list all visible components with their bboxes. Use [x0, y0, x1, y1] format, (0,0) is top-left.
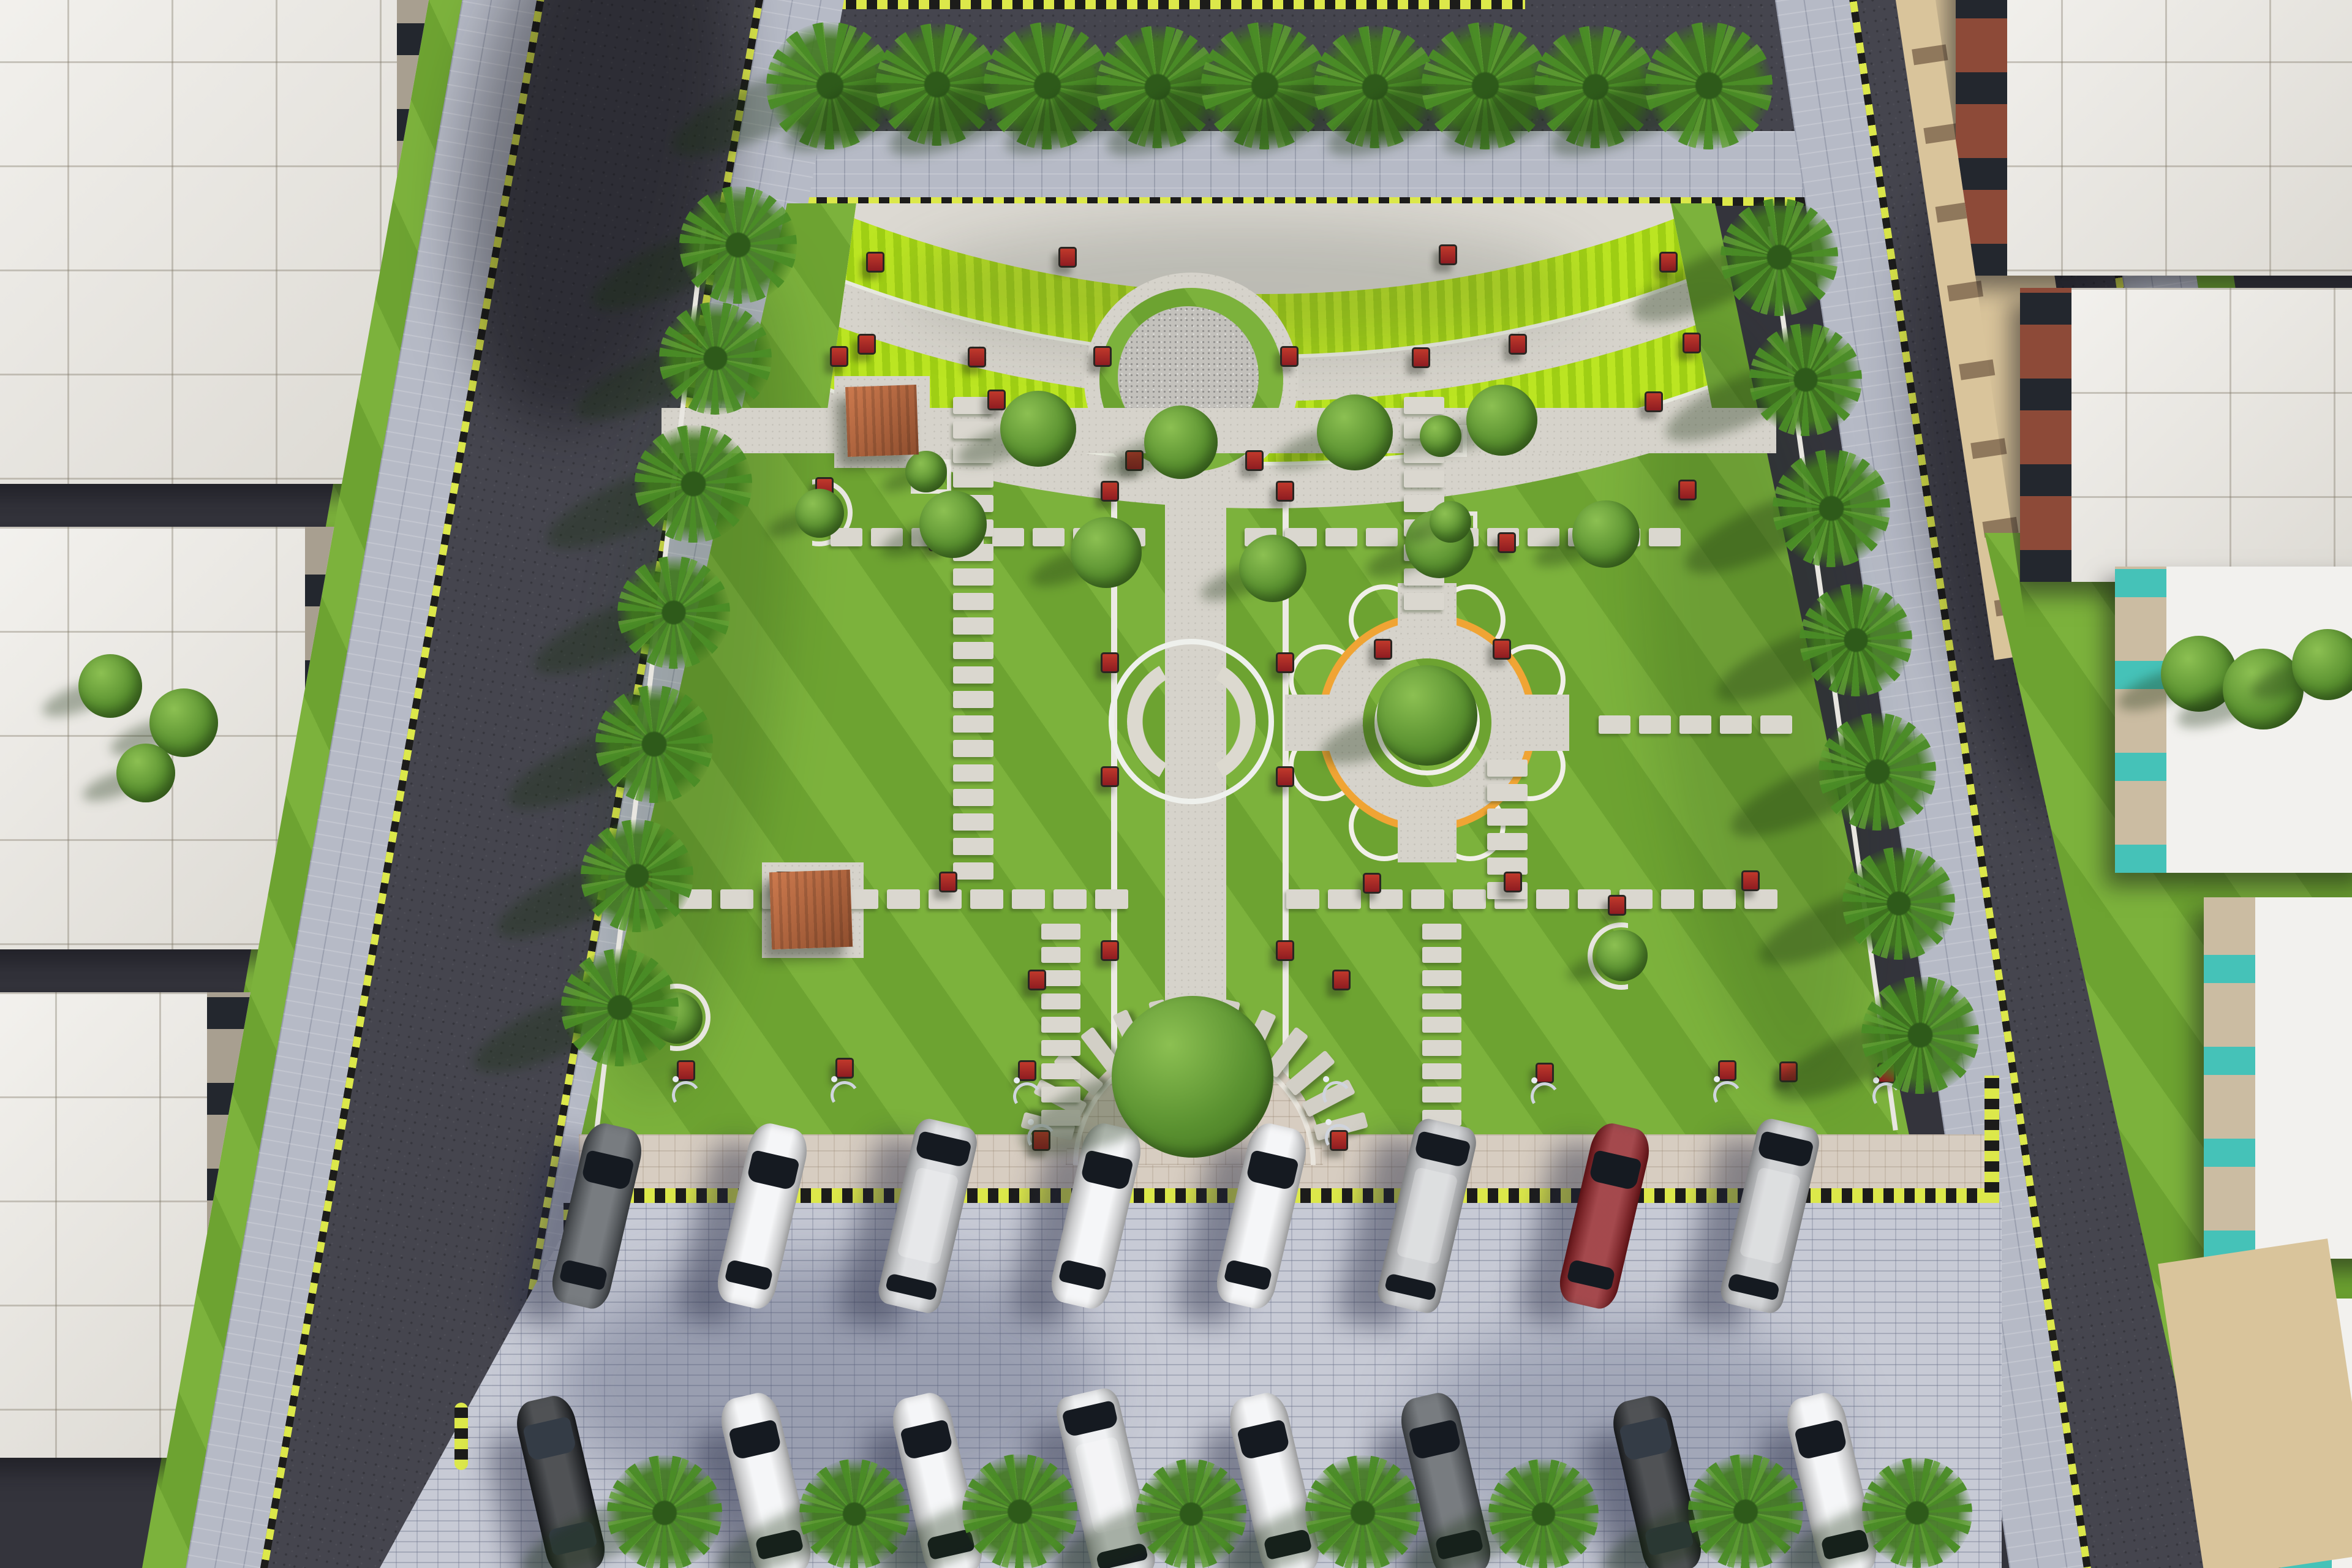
- round-tree: [1466, 385, 1537, 456]
- stepping-stone: [1422, 1040, 1461, 1056]
- tree-canopy: [1317, 394, 1393, 470]
- red-bench: [1101, 481, 1119, 502]
- red-bench: [1363, 873, 1381, 894]
- stepping-stone: [1487, 809, 1528, 826]
- parking-palm-bush-canopy: [1305, 1455, 1420, 1568]
- palm-tree: [1819, 713, 1936, 831]
- stepping-stone: [1041, 1063, 1080, 1079]
- round-tree: [1420, 415, 1461, 457]
- stepping-stone: [1411, 889, 1444, 909]
- round-tree: [78, 654, 142, 718]
- red-bench: [1245, 450, 1264, 471]
- palm-tree: [1645, 22, 1773, 149]
- stepping-stone: [1422, 947, 1461, 963]
- stepping-stone: [1453, 889, 1486, 909]
- stepping-stone: [887, 889, 920, 909]
- red-bench: [1678, 480, 1697, 500]
- palm-tree-canopy: [635, 425, 752, 543]
- parked-car-sedan: [548, 1120, 646, 1312]
- red-bench: [830, 346, 848, 367]
- stepping-stone: [1536, 889, 1569, 909]
- red-bench: [1493, 639, 1511, 660]
- red-bench: [968, 347, 986, 367]
- parking-palm-bush: [607, 1455, 722, 1568]
- stepping-stone: [1041, 970, 1080, 986]
- lamp-post: [669, 1079, 703, 1112]
- red-bench: [939, 872, 957, 892]
- red-bench: [1101, 652, 1119, 673]
- red-bench: [1018, 1060, 1036, 1081]
- parked-car-van: [1717, 1116, 1822, 1315]
- lamp-post: [1711, 1079, 1744, 1112]
- palm-tree: [679, 186, 797, 304]
- parking-palm-bush: [962, 1454, 1077, 1568]
- stepping-stone: [720, 889, 753, 909]
- stepping-stone: [953, 862, 993, 880]
- palm-tree-canopy: [1800, 584, 1912, 696]
- stepping-stone: [1041, 993, 1080, 1009]
- stepping-stone: [1404, 593, 1444, 610]
- stepping-stone: [1095, 889, 1128, 909]
- round-tree: [1596, 930, 1648, 981]
- stepping-stone: [1760, 715, 1792, 734]
- red-bench: [1683, 333, 1701, 353]
- stepping-stone: [1041, 924, 1080, 940]
- stepping-stone: [1404, 470, 1444, 488]
- stepping-stone: [953, 642, 993, 659]
- palm-tree-canopy: [1861, 976, 1979, 1094]
- tree-canopy: [795, 489, 844, 538]
- tree-canopy: [1000, 391, 1076, 467]
- palm-tree-canopy: [561, 949, 679, 1066]
- red-bench: [1093, 346, 1112, 367]
- tree-canopy: [1112, 996, 1273, 1158]
- red-bench: [1718, 1060, 1736, 1081]
- palm-tree: [617, 556, 730, 669]
- gazebo-1-roof: [845, 385, 919, 457]
- red-bench: [866, 252, 884, 273]
- stepping-stone: [953, 740, 993, 757]
- palm-tree: [659, 302, 772, 415]
- palm-tree-canopy: [679, 186, 797, 304]
- round-tree: [1144, 405, 1218, 479]
- stepping-stone: [1703, 889, 1736, 909]
- stepping-stone: [992, 528, 1024, 546]
- palm-tree-canopy: [659, 302, 772, 415]
- tree-canopy: [1144, 405, 1218, 479]
- stepping-stone: [1487, 784, 1528, 801]
- stepping-stone: [1422, 993, 1461, 1009]
- stepping-stone: [953, 691, 993, 708]
- palm-tree-canopy: [1773, 450, 1890, 567]
- palm-tree-canopy: [581, 820, 693, 932]
- stepping-stone: [1422, 1017, 1461, 1033]
- stepping-stone: [953, 789, 993, 806]
- gazebo-2-roof: [769, 870, 853, 950]
- stepping-stone: [1422, 1087, 1461, 1102]
- stepping-stone: [953, 764, 993, 782]
- stepping-stone: [1366, 528, 1398, 546]
- palm-tree-canopy: [617, 556, 730, 669]
- round-tree: [795, 489, 844, 538]
- red-bench: [1412, 347, 1430, 368]
- red-bench: [1439, 244, 1457, 265]
- tree-canopy: [1420, 415, 1461, 457]
- stepping-stone: [1639, 715, 1671, 734]
- palm-tree-canopy: [1819, 713, 1936, 831]
- red-bench: [1276, 652, 1294, 673]
- red-bench: [858, 334, 876, 355]
- tree-canopy: [1239, 535, 1306, 602]
- red-bench: [835, 1058, 854, 1079]
- red-bench: [1276, 766, 1294, 787]
- red-bench: [1280, 346, 1298, 367]
- red-bench: [1058, 247, 1077, 268]
- stepping-stone: [953, 617, 993, 635]
- lamp-post: [1528, 1080, 1562, 1114]
- parked-car-sedan: [1555, 1120, 1654, 1312]
- round-tree: [1377, 665, 1477, 766]
- palm-tree: [1842, 847, 1955, 960]
- parking-palm-bush-canopy: [607, 1455, 722, 1568]
- red-bench: [1536, 1063, 1554, 1084]
- round-tree: [1000, 391, 1076, 467]
- red-bench: [1028, 970, 1046, 990]
- palm-tree: [1749, 323, 1862, 436]
- palm-tree: [595, 685, 713, 803]
- red-bench: [1332, 970, 1351, 990]
- round-tree: [919, 491, 987, 558]
- round-tree: [905, 451, 947, 492]
- tree-canopy: [905, 451, 947, 492]
- stepping-stone: [1487, 759, 1528, 777]
- stepping-stone: [1328, 889, 1361, 909]
- stepping-stone: [953, 715, 993, 733]
- round-tree: [2292, 629, 2352, 700]
- tree-canopy: [1466, 385, 1537, 456]
- parked-car-van: [875, 1116, 980, 1315]
- stepping-stone: [953, 593, 993, 610]
- palm-tree: [581, 820, 693, 932]
- tree-canopy: [919, 491, 987, 558]
- round-tree: [1071, 517, 1142, 588]
- palm-tree-canopy: [1842, 847, 1955, 960]
- parking-palm-bush-canopy: [1488, 1459, 1599, 1568]
- palm-tree: [635, 425, 752, 543]
- red-bench: [1101, 766, 1119, 787]
- parking-palm-bush-canopy: [1862, 1458, 1972, 1568]
- tree-canopy: [1071, 517, 1142, 588]
- round-tree: [1317, 394, 1393, 470]
- stepping-stone: [953, 470, 993, 488]
- round-tree: [1112, 996, 1273, 1158]
- red-bench: [1276, 481, 1294, 502]
- lamp-post: [1322, 1121, 1356, 1155]
- stepping-stone: [1422, 970, 1461, 986]
- stepping-stone: [953, 568, 993, 586]
- palm-tree-canopy: [1721, 198, 1838, 316]
- park-aerial-render: [0, 0, 2352, 1568]
- stepping-stone: [1422, 924, 1461, 940]
- palm-tree-canopy: [1645, 22, 1773, 149]
- red-bench: [1101, 940, 1119, 961]
- parking-palm-bush-canopy: [962, 1454, 1077, 1568]
- parked-car-sedan: [713, 1120, 812, 1312]
- red-bench: [1509, 334, 1527, 355]
- parking-palm-bush: [1488, 1459, 1599, 1568]
- stepping-stone: [970, 889, 1003, 909]
- stepping-stone: [1325, 528, 1357, 546]
- tree-canopy: [1572, 500, 1640, 568]
- stepping-stone: [1679, 715, 1711, 734]
- palm-tree-canopy: [595, 685, 713, 803]
- parking-palm-bush: [1688, 1454, 1803, 1568]
- parking-palm-bush: [1305, 1455, 1420, 1568]
- red-bench: [1741, 870, 1760, 891]
- stepping-stone: [1041, 1040, 1080, 1056]
- stepping-stone: [1422, 1063, 1461, 1079]
- palm-tree: [1721, 198, 1838, 316]
- stepping-stone: [1744, 889, 1777, 909]
- stepping-stone: [1404, 397, 1444, 414]
- palm-tree: [1800, 584, 1912, 696]
- stepping-stone: [1649, 528, 1681, 546]
- palm-tree-canopy: [1749, 323, 1862, 436]
- lamp-post: [828, 1079, 862, 1112]
- red-bench: [1374, 639, 1392, 660]
- tree-canopy: [116, 744, 175, 802]
- palm-tree: [1773, 450, 1890, 567]
- parking-palm-bush: [1862, 1458, 1972, 1568]
- stepping-stone: [953, 813, 993, 831]
- stepping-stone: [1012, 889, 1045, 909]
- round-tree: [1239, 535, 1306, 602]
- stepping-stone: [953, 838, 993, 855]
- stepping-stone: [1041, 1017, 1080, 1033]
- red-bench: [1498, 532, 1516, 553]
- red-bench: [1659, 252, 1678, 273]
- tree-canopy: [1430, 501, 1471, 543]
- generated-scene-objects: [0, 0, 2352, 1568]
- red-bench: [1645, 391, 1663, 412]
- red-bench: [677, 1060, 695, 1081]
- parking-palm-bush-canopy: [1688, 1454, 1803, 1568]
- stepping-stone: [1041, 947, 1080, 963]
- stepping-stone: [1661, 889, 1694, 909]
- round-tree: [1430, 501, 1471, 543]
- lamp-post: [1320, 1079, 1354, 1112]
- stepping-stone: [1487, 833, 1528, 850]
- round-tree: [116, 744, 175, 802]
- stepping-stone: [953, 666, 993, 684]
- stepping-stone: [1720, 715, 1752, 734]
- lamp-post: [1011, 1080, 1044, 1114]
- round-tree: [1572, 500, 1640, 568]
- tree-canopy: [1377, 665, 1477, 766]
- tree-canopy: [78, 654, 142, 718]
- red-bench: [1504, 872, 1522, 892]
- palm-tree: [561, 949, 679, 1066]
- stepping-stone: [1599, 715, 1630, 734]
- parked-car-van: [1374, 1116, 1479, 1315]
- stepping-stone: [1578, 889, 1611, 909]
- red-bench: [1276, 940, 1294, 961]
- red-bench: [1608, 895, 1626, 916]
- stepping-stone: [1033, 528, 1065, 546]
- palm-tree: [1861, 976, 1979, 1094]
- stepping-stone: [1286, 889, 1319, 909]
- tree-canopy: [1596, 930, 1648, 981]
- stepping-stone: [1053, 889, 1087, 909]
